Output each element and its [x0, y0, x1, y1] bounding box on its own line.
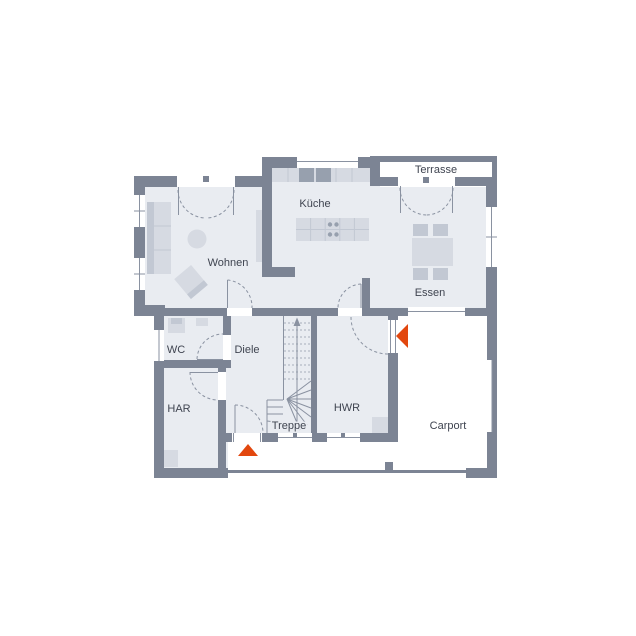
kitchen-appliance	[299, 168, 314, 182]
wc-door-opening	[223, 335, 231, 360]
front-door-frame	[232, 433, 262, 442]
cooktop-burner	[328, 222, 332, 226]
room-label-carport: Carport	[430, 420, 467, 432]
har-door-opening	[218, 372, 226, 400]
wall-exterior-bottom	[154, 468, 228, 478]
wc-toilet	[196, 318, 208, 326]
carport-post	[385, 462, 393, 470]
window-marker	[341, 433, 345, 437]
room-label-har: HAR	[167, 403, 190, 415]
room-label-wc: WC	[167, 344, 185, 356]
room-label-kueche: Küche	[299, 198, 330, 210]
room-label-hwr: HWR	[334, 402, 360, 414]
sofa	[154, 202, 171, 274]
dining-table	[412, 238, 453, 266]
carport-boundary-line	[228, 470, 487, 473]
wall-mid	[252, 308, 338, 316]
room-label-diele: Diele	[234, 344, 259, 356]
dining-chair	[413, 224, 428, 236]
carport-opening	[487, 360, 492, 432]
dining-chair	[433, 224, 448, 236]
door-marker	[423, 177, 429, 183]
carport-area	[398, 316, 487, 470]
wall	[262, 433, 278, 442]
cooktop-burner	[328, 232, 332, 236]
har-storage	[163, 450, 178, 467]
room-label-wohnen: Wohnen	[208, 257, 249, 269]
cooktop-burner	[334, 222, 338, 226]
dining-chair	[413, 268, 428, 280]
wall	[226, 433, 232, 442]
door-marker	[203, 176, 209, 182]
room-label-treppe: Treppe	[272, 420, 306, 432]
wc-sink-top	[171, 318, 182, 324]
round-table	[188, 230, 207, 249]
dining-chair	[433, 268, 448, 280]
room-label-terrasse: Terrasse	[415, 164, 457, 176]
wall	[360, 433, 398, 442]
window-marker	[293, 433, 297, 437]
hwr-storage	[372, 417, 390, 433]
wall-mid	[145, 308, 227, 316]
floor-plan-page: Terrasse Küche Wohnen Essen WC Diele HAR…	[0, 0, 636, 636]
cooktop-burner	[334, 232, 338, 236]
wall-stair	[311, 316, 317, 433]
wall	[262, 157, 272, 277]
room-label-essen: Essen	[415, 287, 446, 299]
floor-plan: Terrasse Küche Wohnen Essen WC Diele HAR…	[0, 0, 636, 636]
wall-wc-bottom	[154, 360, 231, 368]
wall	[312, 433, 327, 442]
wall	[262, 267, 295, 277]
sofa-backrest	[147, 202, 154, 274]
kitchen-appliance	[316, 168, 331, 182]
wall-stub	[362, 278, 370, 308]
